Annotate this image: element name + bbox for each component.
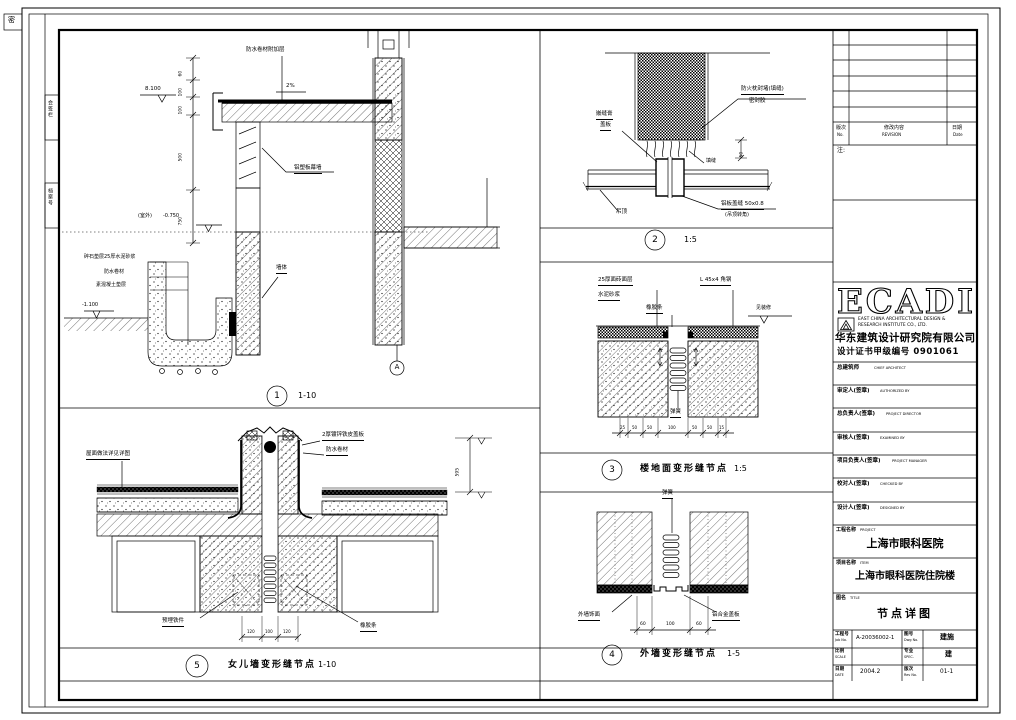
rev-no-label-en: Rev No. [904, 674, 917, 677]
d5-ann-top-2: 防水卷材 [326, 448, 348, 456]
d5-ann-bottom-left: 预埋铁件 [162, 619, 184, 627]
job-no-value: A-20036002-1 [856, 636, 894, 641]
date-label-en: DATE [835, 674, 844, 677]
d5-caption-number: 5 [187, 662, 207, 671]
subproject-label: 项目名称 [836, 561, 856, 566]
d5-dim-right: 595 [457, 468, 462, 477]
rev-no-value: 01-1 [940, 670, 953, 676]
ecadi-wordmark: ECADI [837, 282, 973, 322]
detail-4-linework [597, 499, 748, 665]
d2-ann-right-1: 防火枕封堵(填缝) [741, 87, 784, 95]
d4-ann-bottom-left: 外墙饰面 [578, 613, 600, 621]
corner-stamp: 密 [8, 17, 15, 24]
d5-caption-title: 女儿墙变形缝节点 [228, 661, 316, 670]
d5-ann-bottom-right: 橡胶条 [360, 624, 377, 632]
rev-col-revision: 修改内容 [884, 126, 904, 131]
d5-dim: 100 [265, 630, 273, 634]
ecadi-en-line2: RESEARCH INSTITUTE CO., LTD. [858, 324, 927, 328]
drawing-name: 节点详图 [833, 608, 977, 619]
d3-dim: 50 [692, 426, 697, 430]
detail-3-linework [596, 290, 792, 480]
d5-ann-left: 屋面做法详见详图 [86, 452, 130, 460]
d5-dim: 120 [283, 630, 291, 634]
d5-ann-top-1: 2厚镀锌铁皮盖板 [322, 433, 364, 441]
rev-col-no-en: No. [837, 133, 844, 137]
rev-col-date-en: Date [953, 133, 963, 137]
sig-row-label: 项目负责人(签章) [837, 459, 881, 465]
d3-ann-2: 水泥砂浆 [598, 293, 620, 301]
date-label: 日期 [835, 668, 844, 673]
d5-caption-scale: 1-10 [318, 661, 336, 669]
sig-row-label: 总建筑师 [837, 366, 859, 372]
detail-1-linework [62, 30, 500, 406]
sig-row-label-en: CHIEF ARCHITECT [874, 367, 906, 371]
d1-ann-wall: 墙体 [276, 266, 287, 274]
dwg-no-value: 建施 [940, 634, 954, 641]
d3-ann-3: 橡胶条 [646, 306, 663, 314]
subproject-name: 上海市眼科医院住院楼 [833, 572, 977, 582]
spec-label-en: SPEC. [904, 656, 914, 659]
project-name: 上海市眼科医院 [833, 538, 977, 549]
job-no-label-en: Job No. [835, 639, 847, 642]
d3-dim: 50 [632, 426, 637, 430]
d1-elev-mid-prefix: (室外) [138, 214, 152, 219]
d1-caption-scale: 1-10 [298, 392, 316, 400]
d1-dim: 750 [180, 217, 185, 226]
d3-caption-number: 3 [602, 466, 622, 475]
detail-5-linework [97, 427, 492, 677]
rev-col-no: 版次 [836, 126, 846, 131]
d4-caption-scale: 1-5 [727, 650, 740, 658]
d1-dim: 60 [180, 71, 185, 77]
d2-ann-bottom-left: 吊顶 [616, 210, 627, 216]
scale-label: 比例 [835, 650, 844, 655]
project-label-en: PROJECT [860, 529, 876, 533]
sig-row-label: 总负责人(签章) [837, 412, 875, 418]
rev-no-label: 版次 [904, 668, 913, 673]
d1-dim: 100 [180, 106, 185, 115]
date-value: 2004.2 [860, 670, 880, 676]
sig-row-label: 审核人(签章) [837, 436, 870, 442]
ecadi-en-line1: EAST CHINA ARCHITECTURAL DESIGN & [858, 318, 945, 322]
drawing-name-label: 图名 [836, 596, 846, 601]
rev-col-revision-en: REVISION [882, 133, 901, 137]
sig-row-label-en: PROJECT DIRECTOR [886, 413, 921, 417]
d4-ann-top: 弹簧 [662, 491, 673, 499]
d3-ann-1: 25厚面砖面层 [598, 278, 633, 286]
d3-dim: 15 [719, 426, 724, 430]
dwg-no-label-en: Dwg No. [904, 639, 918, 642]
d2-caption-number: 2 [645, 236, 665, 245]
binding-strip-cell-2: 档案号 [47, 188, 52, 206]
detail-2-linework [583, 53, 806, 250]
d5-dim: 120 [247, 630, 255, 634]
subproject-label-en: ITEM [860, 562, 869, 566]
d2-ann-mid: 填缝 [706, 159, 716, 164]
d2-ann-bottom-right-2: (吊顶转角) [725, 213, 749, 218]
sig-row-label: 校对人(签章) [837, 482, 870, 488]
d2-dim: 50 [741, 152, 746, 158]
project-label: 工程名称 [836, 528, 856, 533]
d1-ann-left-3: 素混凝土垫层 [96, 283, 126, 288]
sig-row-label: 审定人(签章) [837, 389, 870, 395]
d4-dim: 60 [696, 623, 702, 628]
sig-row-label: 设计人(签章) [837, 506, 870, 512]
ecadi-cn-name: 华东建筑设计研究院有限公司 [835, 333, 975, 344]
d1-elev-ground: -1.100 [82, 303, 98, 308]
sig-row-label-en: PROJECT MANAGER [892, 460, 927, 464]
d4-caption-title: 外墙变形缝节点 [640, 650, 717, 659]
d2-ann-left-2: 盖板 [600, 123, 611, 131]
d3-caption-title: 楼地面变形缝节点 [640, 465, 728, 474]
job-no-label: 工程号 [835, 633, 849, 638]
d1-elev-mid: -0.750 [163, 214, 179, 219]
sig-row-label-en: AUTHORIZED BY [880, 390, 909, 394]
d1-grid-bubble: A [387, 364, 407, 371]
sig-row-label-en: EXAMINED BY [880, 437, 905, 441]
d3-ann-bottom: 弹簧 [670, 410, 681, 418]
d2-caption-scale: 1:5 [684, 236, 697, 244]
sig-row-label-en: DESIGNED BY [880, 507, 905, 511]
d1-slope-label: 2% [286, 84, 295, 90]
sig-row-label-en: CHECKED BY [880, 483, 903, 487]
d4-caption-number: 4 [602, 651, 622, 660]
d1-ann-curtain-wall: 铝塑板幕墙 [294, 166, 322, 174]
d3-dim: 50 [647, 426, 652, 430]
ecadi-cert-line: 设计证书甲级编号 0901061 [837, 348, 959, 357]
d2-ann-right-2: 密封胶 [749, 99, 766, 105]
d3-caption-scale: 1:5 [734, 465, 747, 473]
rev-col-date: 日期 [952, 126, 962, 131]
d3-dim: 100 [668, 426, 676, 430]
d1-dim: 500 [180, 153, 185, 162]
dwg-no-label: 图号 [904, 633, 913, 638]
d4-dim: 100 [666, 623, 675, 628]
spec-value: 建 [945, 651, 952, 658]
d1-dim: 100 [180, 88, 185, 97]
d1-ann-left-2: 防水卷材 [104, 270, 124, 275]
d3-ann-4: L 45x4 角钢 [700, 278, 731, 286]
d1-caption-number: 1 [267, 392, 287, 401]
spec-label: 专业 [904, 650, 913, 655]
d3-dim: 50 [707, 426, 712, 430]
d2-ann-bottom-right-1: 铝板盖缝 50x0.8 [721, 202, 764, 210]
d2-ann-left-1: 嵌缝膏 [596, 112, 613, 120]
d3-elev-note: 见装修 [756, 306, 771, 311]
scale-label-en: SCALE [835, 656, 846, 659]
drawing-name-label-en: TITLE [850, 597, 860, 601]
note-label: 注: [837, 148, 845, 154]
d1-ann-membrane: 防水卷材附加层 [246, 48, 285, 54]
d4-ann-bottom-right: 铝合金盖板 [712, 613, 740, 621]
d3-dim: 25 [620, 426, 625, 430]
drawing-sheet: ECADI [0, 0, 1016, 720]
d1-elev-top: 8.100 [145, 87, 161, 93]
binding-strip-cell-1: 会签栏 [47, 100, 52, 118]
d1-ann-left-1: 碎石垫层25厚水泥砂浆 [84, 255, 135, 260]
d4-dim: 60 [640, 623, 646, 628]
